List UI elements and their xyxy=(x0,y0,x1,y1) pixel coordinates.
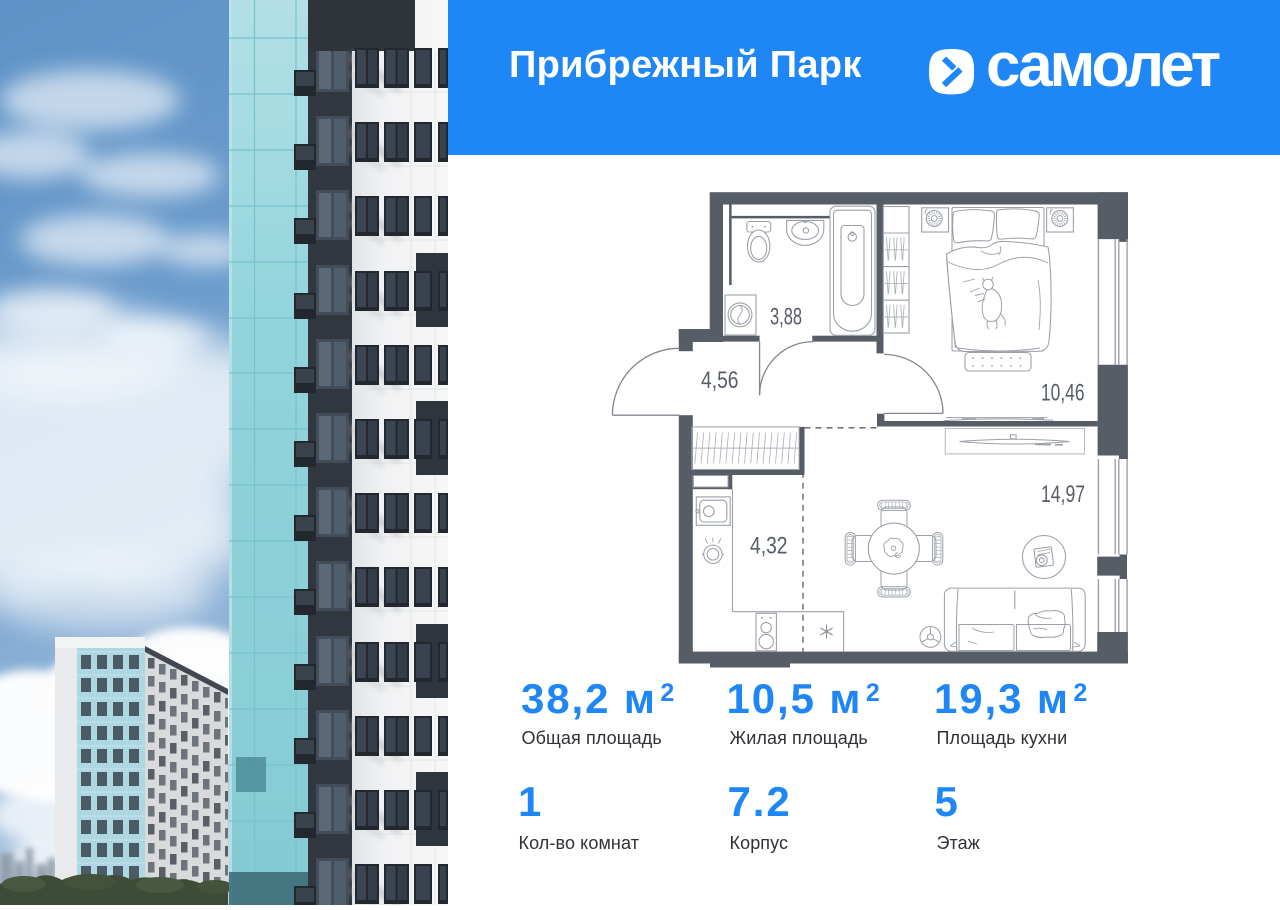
svg-text:3,88: 3,88 xyxy=(770,304,802,331)
svg-text:14,97: 14,97 xyxy=(1041,481,1085,508)
svg-text:4,56: 4,56 xyxy=(701,367,739,394)
svg-text:4,32: 4,32 xyxy=(750,533,788,560)
svg-text:10,46: 10,46 xyxy=(1041,380,1085,407)
